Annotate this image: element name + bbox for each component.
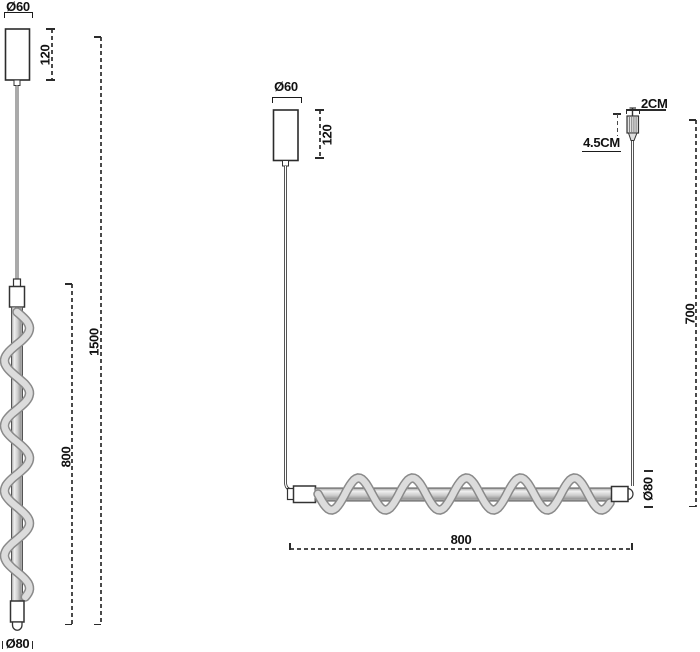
- right-bar-left-cap: [294, 486, 316, 503]
- left-canopy-diameter-bracket: [4, 12, 33, 18]
- left-socket-nub: [14, 279, 21, 287]
- right-bar-length-dimline: [290, 548, 632, 549]
- right-bar-length-tick-left: [289, 543, 290, 550]
- left-socket: [10, 287, 25, 308]
- right-left-cable: [286, 166, 294, 490]
- left-spiral-height-tick-top: [65, 283, 72, 284]
- left-bottom-diameter-label: Ø80: [2, 637, 33, 650]
- right-tube-diameter-tick-top: [644, 470, 653, 471]
- right-canopy-height-tick-bottom: [315, 157, 324, 158]
- left-bottom-diameter-tick-right: [32, 641, 33, 649]
- right-canopy-height-label: 120: [321, 125, 334, 146]
- right-canopy-diameter-label: Ø60: [271, 80, 301, 93]
- left-canopy-height-tick-bottom: [46, 79, 55, 80]
- right-suspension-height-tick-bottom: [689, 506, 696, 507]
- right-suspension-height-label: 700: [683, 304, 696, 325]
- right-bar-right-cap: [612, 487, 629, 502]
- cord-grip-taper: [629, 133, 638, 141]
- cord-grip-length-label: 4.5CM: [582, 136, 621, 152]
- left-canopy-nipple: [14, 80, 20, 86]
- left-overall-height-label: 1500: [88, 328, 101, 356]
- right-canopy-height-tick-top: [315, 109, 324, 110]
- technical-drawing-canvas: Ø60 120 1500 800 Ø80 Ø60 120 2CM 4.5CM: [0, 0, 700, 652]
- right-tube-diameter-label: Ø80: [642, 477, 655, 501]
- left-canopy-height-tick-top: [46, 28, 55, 29]
- left-spiral-height-tick-bottom: [65, 624, 72, 625]
- left-bottom-cap: [11, 601, 25, 622]
- cord-grip-width-label: 2CM: [641, 97, 668, 110]
- right-bar-length-tick-right: [631, 543, 632, 550]
- cord-grip-body: [627, 116, 639, 133]
- left-spiral-height-label: 800: [59, 447, 72, 468]
- right-tube-diameter-tick-bottom: [644, 506, 653, 507]
- left-bottom-diameter-tick-left: [2, 641, 3, 649]
- cord-grip-width-tick-left: [626, 109, 627, 114]
- left-canopy-height-label: 120: [39, 45, 52, 66]
- right-canopy: [274, 110, 299, 161]
- cord-grip-width-tick-right: [639, 109, 640, 114]
- right-bar-length-label: 800: [441, 533, 481, 546]
- left-overall-height-tick-top: [94, 36, 101, 37]
- left-bottom-tip: [13, 622, 23, 630]
- drawing-lineart: [0, 0, 700, 652]
- right-suspension-height-tick-top: [689, 119, 696, 120]
- cord-grip-length-dimline: [617, 114, 618, 136]
- right-canopy-nipple: [283, 161, 289, 167]
- left-canopy: [6, 29, 30, 80]
- left-overall-height-tick-bottom: [94, 624, 101, 625]
- right-canopy-diameter-bracket: [272, 97, 302, 103]
